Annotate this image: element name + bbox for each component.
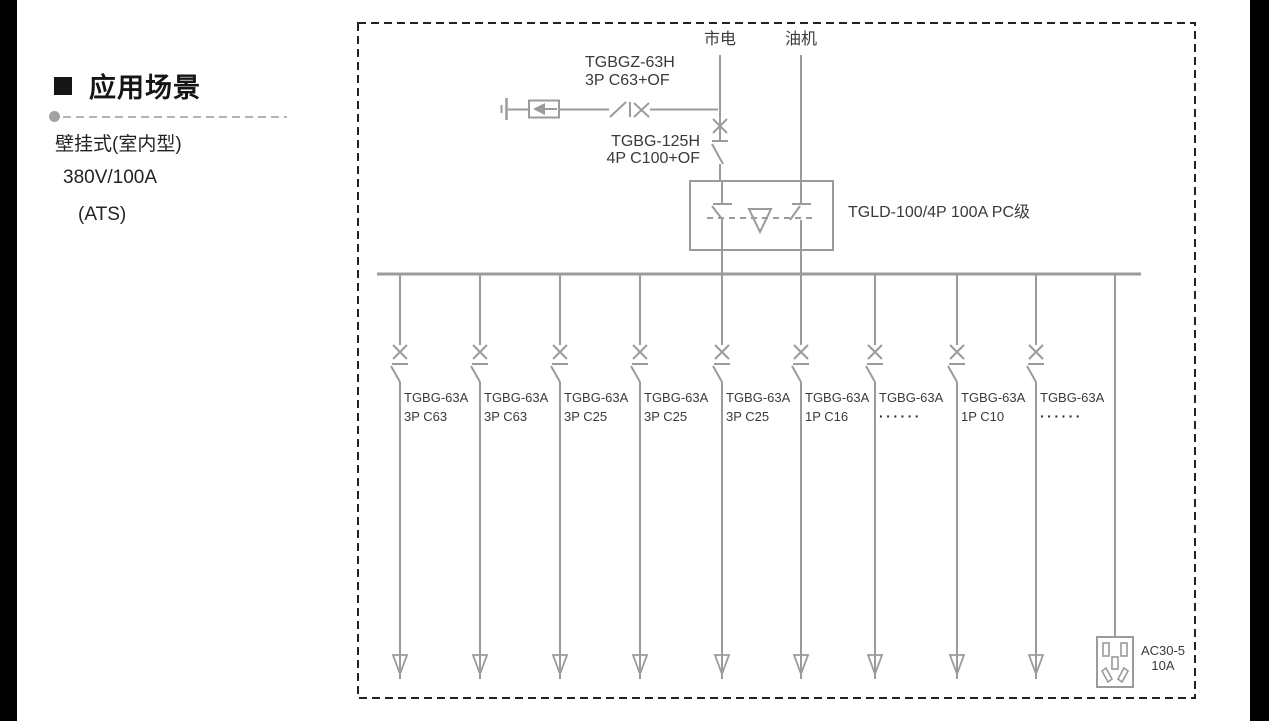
socket-slot-right-icon [1118, 668, 1128, 682]
feeder-spec: 3P C25 [644, 407, 708, 426]
feeder-model: TGBG-63A [726, 388, 790, 407]
feeder-branch [471, 274, 488, 679]
feeder-branches [391, 274, 1044, 679]
spd-breaker-spec: 3P C63+OF [585, 72, 675, 90]
feeder-branch [948, 274, 965, 679]
feeder-model: TGBG-63A [1040, 388, 1104, 407]
feeder-spec: 3P C25 [726, 407, 790, 426]
feeder-spec: 1P C16 [805, 407, 869, 426]
generator-source-label: 油机 [771, 31, 831, 49]
feeder-model: TGBG-63A [879, 388, 943, 407]
spd-breaker-model: TGBGZ-63H [585, 54, 675, 72]
feeder-model: TGBG-63A [805, 388, 869, 407]
feeder-branch [391, 274, 408, 679]
mains-source-label: 市电 [690, 31, 750, 49]
socket-rating: 10A [1136, 658, 1190, 673]
feeder-label: TGBG-63A3P C25 [564, 388, 628, 426]
enclosure-border [358, 23, 1195, 698]
socket-slot-left-icon [1102, 668, 1112, 682]
feeder-branch [631, 274, 648, 679]
feeder-label: TGBG-63A3P C25 [644, 388, 708, 426]
feeder-spec: 3P C63 [404, 407, 468, 426]
feeder-model: TGBG-63A [644, 388, 708, 407]
socket-model: AC30-5 [1136, 643, 1190, 658]
feeder-spec: ······ [879, 407, 943, 426]
main-breaker-model: TGBG-125H [540, 133, 700, 150]
spd-branch [502, 98, 719, 120]
socket-label: AC30-5 10A [1136, 643, 1190, 673]
ats-label: TGLD-100/4P 100A PC级 [848, 204, 1030, 222]
feeder-spec: 3P C25 [564, 407, 628, 426]
feeder-spec: 1P C10 [961, 407, 1025, 426]
feeder-model: TGBG-63A [404, 388, 468, 407]
feeder-branch [1027, 274, 1044, 679]
feeder-label: TGBG-63A3P C63 [484, 388, 548, 426]
spd-breaker-label: TGBGZ-63H 3P C63+OF [585, 54, 675, 90]
main-breaker-label: TGBG-125H 4P C100+OF [540, 133, 700, 167]
feeder-label: TGBG-63A1P C10 [961, 388, 1025, 426]
page: 应用场景 壁挂式(室内型) 380V/100A (ATS) [0, 0, 1269, 721]
single-line-diagram [0, 0, 1269, 721]
feeder-branch [866, 274, 883, 679]
spd-arrow-icon [533, 103, 545, 115]
feeder-label: TGBG-63A······ [879, 388, 943, 426]
feeder-spec: 3P C63 [484, 407, 548, 426]
feeder-spec: ······ [1040, 407, 1104, 426]
feeder-branch [713, 274, 730, 679]
feeder-branch [551, 274, 568, 679]
feeder-label: TGBG-63A······ [1040, 388, 1104, 426]
ats-symbol [690, 181, 833, 274]
mains-incoming-line [712, 55, 728, 181]
feeder-model: TGBG-63A [484, 388, 548, 407]
feeder-model: TGBG-63A [564, 388, 628, 407]
socket-branch [1097, 274, 1133, 687]
feeder-label: TGBG-63A1P C16 [805, 388, 869, 426]
main-breaker-spec: 4P C100+OF [540, 150, 700, 167]
feeder-model: TGBG-63A [961, 388, 1025, 407]
feeder-branch [792, 274, 809, 679]
ats-triangle-icon [749, 209, 771, 232]
feeder-label: TGBG-63A3P C63 [404, 388, 468, 426]
feeder-label: TGBG-63A3P C25 [726, 388, 790, 426]
